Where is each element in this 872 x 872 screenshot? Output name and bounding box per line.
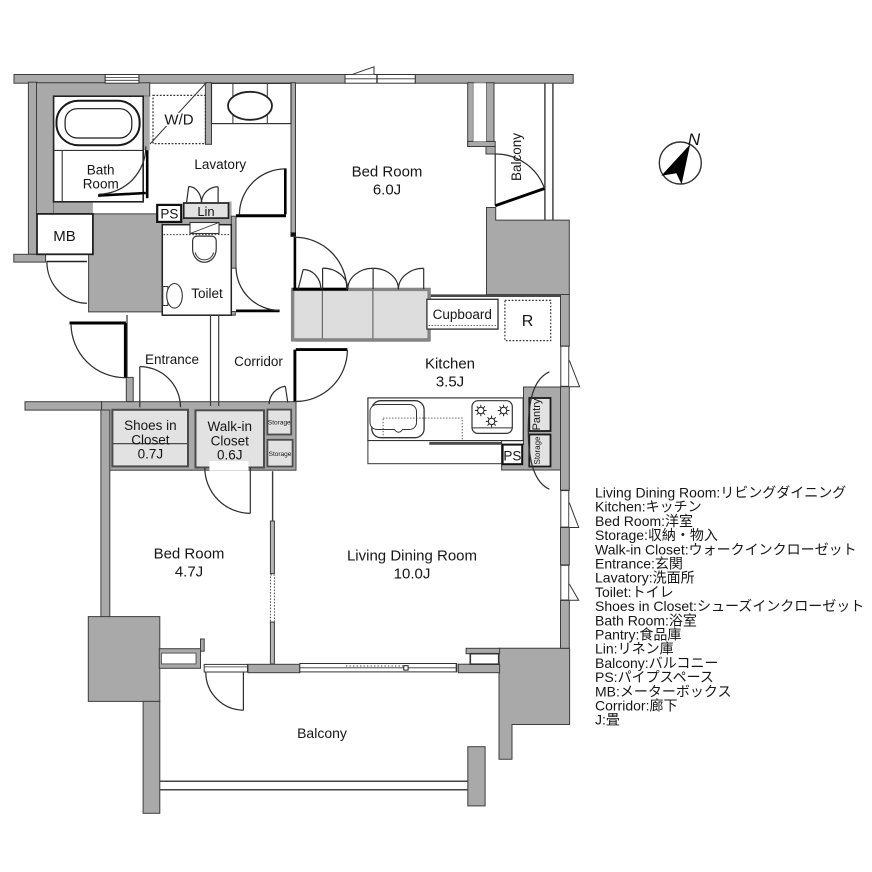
svg-text:J:畳: J:畳 — [595, 712, 620, 728]
svg-text:Storage: Storage — [268, 420, 291, 427]
svg-text:Balcony: Balcony — [509, 133, 524, 181]
svg-text:Bath: Bath — [87, 163, 115, 178]
svg-text:W/D: W/D — [164, 112, 193, 129]
svg-text:Lavatory: Lavatory — [194, 157, 246, 172]
svg-text:Storage: Storage — [269, 451, 292, 458]
svg-text:0.7J: 0.7J — [138, 447, 164, 462]
svg-text:6.0J: 6.0J — [373, 182, 401, 199]
svg-text:PS: PS — [160, 206, 178, 221]
svg-text:PS: PS — [503, 448, 521, 463]
svg-text:Bed Room: Bed Room — [154, 546, 225, 563]
svg-text:Cupboard: Cupboard — [433, 307, 492, 322]
svg-text:10.0J: 10.0J — [394, 566, 431, 583]
svg-text:Lin: Lin — [197, 204, 214, 219]
svg-text:Walk-in: Walk-in — [208, 419, 253, 434]
svg-text:Closet: Closet — [131, 432, 170, 447]
svg-text:Pantry: Pantry — [531, 398, 543, 430]
svg-text:Shoes in: Shoes in — [124, 418, 177, 433]
svg-text:R: R — [522, 313, 534, 330]
svg-text:Room: Room — [83, 177, 119, 192]
svg-text:Toilet: Toilet — [191, 286, 223, 301]
svg-text:Bed Room: Bed Room — [352, 164, 423, 181]
svg-text:Storage: Storage — [533, 436, 542, 465]
svg-text:MB: MB — [53, 228, 76, 245]
svg-text:Balcony: Balcony — [297, 725, 347, 741]
svg-text:N: N — [688, 130, 701, 149]
svg-text:Kitchen: Kitchen — [425, 356, 475, 373]
svg-text:4.7J: 4.7J — [175, 564, 203, 581]
svg-text:Corridor: Corridor — [234, 354, 283, 369]
svg-text:Closet: Closet — [211, 433, 250, 448]
svg-text:3.5J: 3.5J — [436, 374, 464, 391]
svg-text:Entrance: Entrance — [145, 352, 199, 367]
svg-text:Living Dining Room: Living Dining Room — [347, 548, 477, 565]
svg-text:0.6J: 0.6J — [217, 448, 243, 463]
